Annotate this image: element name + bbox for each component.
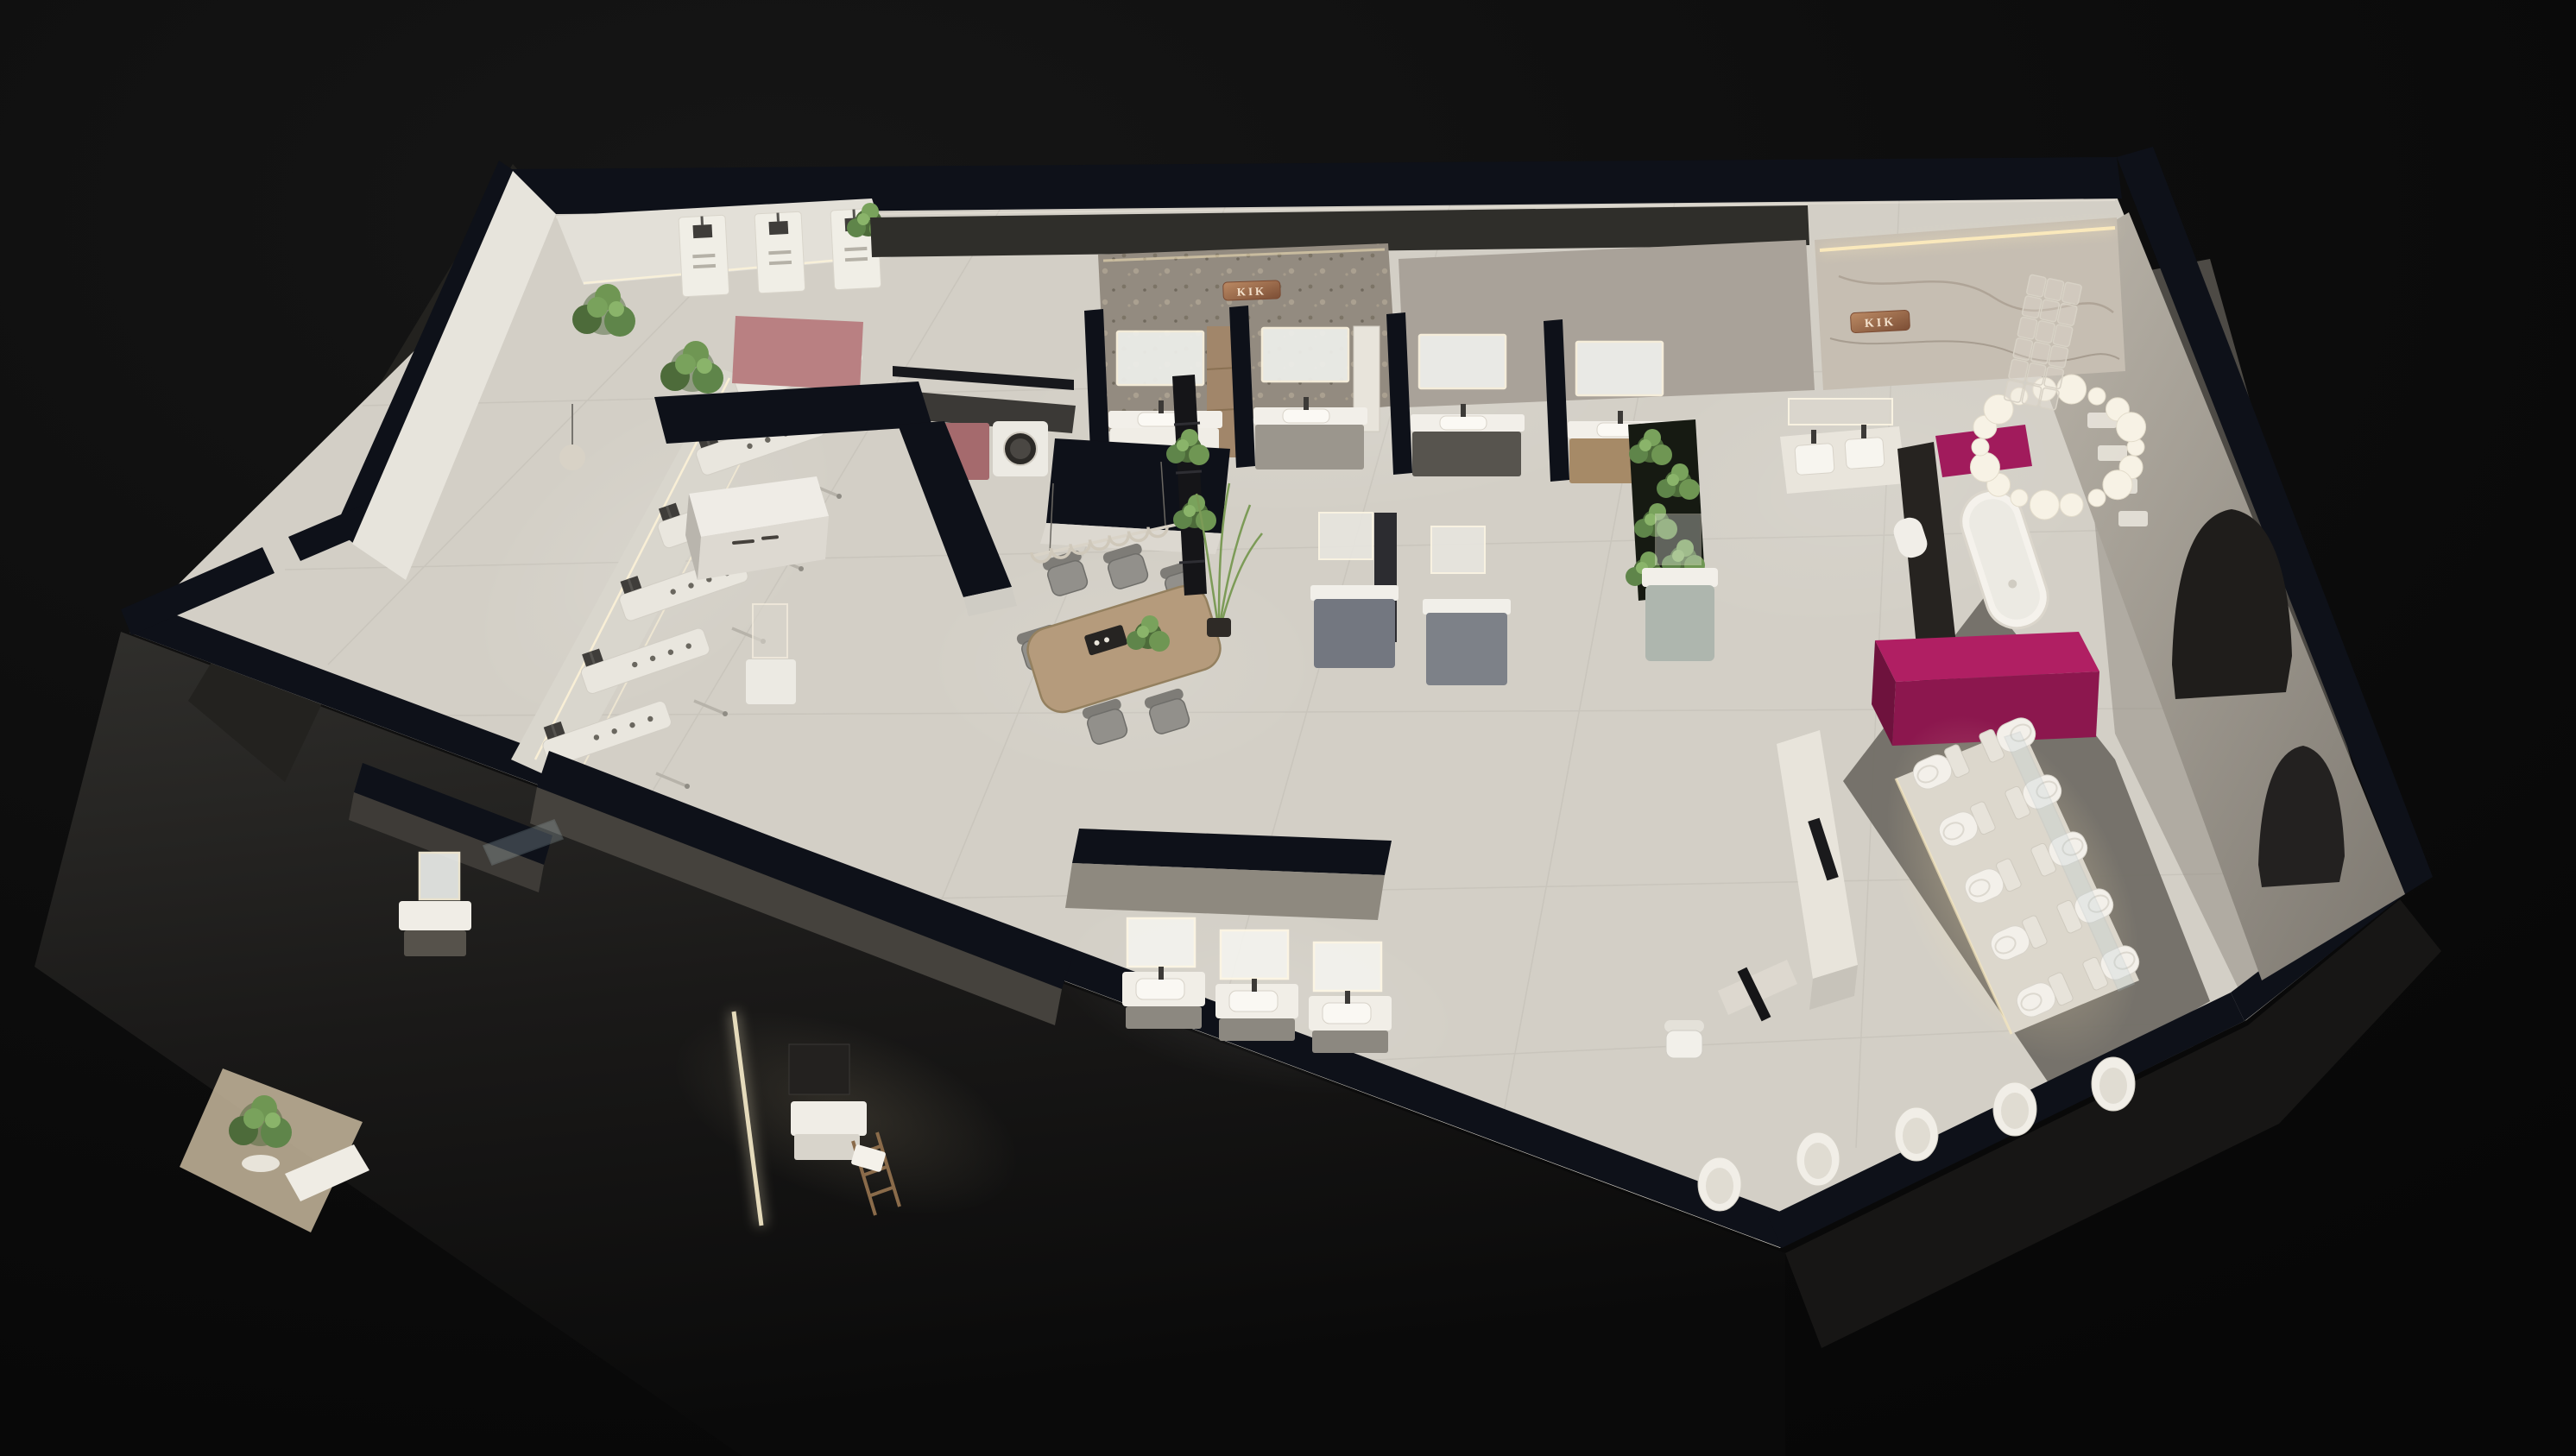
- faucet: [1345, 991, 1350, 1004]
- white-vanity: [791, 1101, 867, 1136]
- pendant-lamp: [559, 444, 585, 470]
- white-counter: [399, 901, 471, 930]
- glass-block: [2061, 282, 2081, 305]
- cabinet: [1426, 613, 1507, 685]
- basin-bowl: [1706, 1168, 1733, 1204]
- shower-arm: [702, 217, 703, 225]
- stone-wall-signboard: KIK: [1223, 280, 1281, 300]
- cabinet: [1255, 425, 1364, 470]
- basin: [1229, 991, 1278, 1012]
- basin-bowl: [1804, 1143, 1832, 1179]
- glass-block: [2026, 362, 2046, 385]
- glass-block: [2040, 299, 2060, 322]
- basin-bowl: [2001, 1093, 2029, 1129]
- glass-block: [2022, 384, 2042, 407]
- glass-block: [2044, 278, 2064, 300]
- cabinet: [1314, 599, 1395, 668]
- basin: [1283, 409, 1329, 423]
- chandelier-disc: [2030, 490, 2059, 520]
- glass-block: [2030, 342, 2050, 364]
- basin: [1845, 438, 1885, 470]
- chandelier-disc: [2088, 388, 2106, 405]
- showroom-3d-plan: KIK KIK: [0, 0, 2576, 1456]
- shower-arm: [778, 213, 779, 222]
- double-sink-vanity: [1780, 399, 1906, 494]
- cabinet: [1126, 1006, 1202, 1029]
- basin: [1795, 444, 1834, 476]
- chandelier-disc: [2088, 489, 2106, 507]
- lit-mirror: [1221, 930, 1288, 979]
- faucet: [1304, 397, 1309, 410]
- glass-block: [2039, 388, 2059, 410]
- glass-block: [2044, 367, 2064, 389]
- lit-mirror: [1789, 399, 1892, 425]
- rain-shower-head: [693, 224, 713, 238]
- hand-shower: [837, 494, 842, 499]
- basin: [1323, 1003, 1371, 1024]
- lit-mirror: [420, 853, 459, 899]
- basin: [1440, 416, 1487, 430]
- chandelier-disc: [2060, 493, 2083, 516]
- white-counter: [1423, 599, 1511, 615]
- chandelier-disc: [2103, 470, 2132, 500]
- lit-mirror: [1319, 513, 1373, 559]
- chandelier-disc: [2011, 489, 2028, 507]
- glass-block: [2008, 359, 2028, 381]
- faucet: [1811, 430, 1816, 444]
- marble-wall-sign-text: KIK: [1865, 316, 1897, 331]
- vanity-unit: [1215, 930, 1298, 1041]
- white-chair: [1664, 1020, 1704, 1058]
- sage-cabinet: [1645, 585, 1714, 661]
- cabinet: [1312, 1031, 1388, 1053]
- vanity-unit: [1122, 918, 1205, 1029]
- rain-shower-head: [769, 221, 789, 235]
- gray-vanity-unit: [1310, 513, 1398, 668]
- marble-wall-signboard: KIK: [1850, 310, 1910, 333]
- pink-laminate-panel: [732, 316, 863, 390]
- chandelier-disc: [1970, 452, 1999, 482]
- lit-mirror: [1419, 335, 1506, 388]
- faucet: [1618, 411, 1623, 424]
- shower-panel: [679, 215, 729, 297]
- shower-panel: [754, 211, 805, 293]
- washer-door-glass: [1010, 438, 1031, 459]
- lit-mirror: [1576, 342, 1663, 395]
- dark-cabinet: [404, 930, 466, 956]
- glass-block: [2022, 295, 2042, 318]
- render-stage: KIK KIK: [0, 0, 2576, 1456]
- glass-block: [2004, 380, 2024, 402]
- shower-arm: [854, 210, 855, 218]
- small-vanity: [746, 659, 796, 704]
- lit-mirror: [1262, 328, 1348, 381]
- mirror-panel: [753, 604, 787, 658]
- glass-block: [2017, 317, 2037, 339]
- chandelier-disc: [1972, 438, 1989, 456]
- faucet: [1159, 400, 1164, 413]
- stone-wall-sign-text: KIK: [1237, 284, 1267, 298]
- glass-block: [2035, 320, 2055, 343]
- glass-block: [2049, 345, 2068, 368]
- glass-block: [2057, 303, 2077, 325]
- hand-shower: [799, 566, 804, 571]
- planter: [242, 1155, 280, 1172]
- hand-shower: [723, 711, 728, 716]
- vanity-unit: [1309, 942, 1392, 1053]
- faucet: [1461, 404, 1466, 417]
- faucet: [1159, 967, 1164, 980]
- lit-mirror: [1314, 942, 1381, 991]
- mirror-panel: [1656, 514, 1701, 564]
- hand-shower: [685, 784, 690, 789]
- cabinet: [1219, 1018, 1295, 1041]
- chandelier-disc: [2117, 413, 2146, 442]
- cabinet: [1412, 432, 1521, 476]
- faucet: [1861, 425, 1866, 438]
- glass-block: [2053, 325, 2073, 347]
- lit-mirror: [1431, 526, 1485, 573]
- white-counter: [1642, 568, 1718, 587]
- basin: [1136, 979, 1184, 999]
- basin-bowl: [1903, 1118, 1930, 1154]
- white-counter: [1310, 585, 1398, 601]
- glass-block: [2026, 274, 2046, 297]
- vanity-base: [794, 1134, 860, 1160]
- basin-bowl: [2099, 1068, 2127, 1104]
- glass-block: [2013, 337, 2033, 360]
- lit-mirror: [1127, 918, 1195, 967]
- dark-mirror: [789, 1044, 849, 1094]
- faucet: [1252, 979, 1257, 992]
